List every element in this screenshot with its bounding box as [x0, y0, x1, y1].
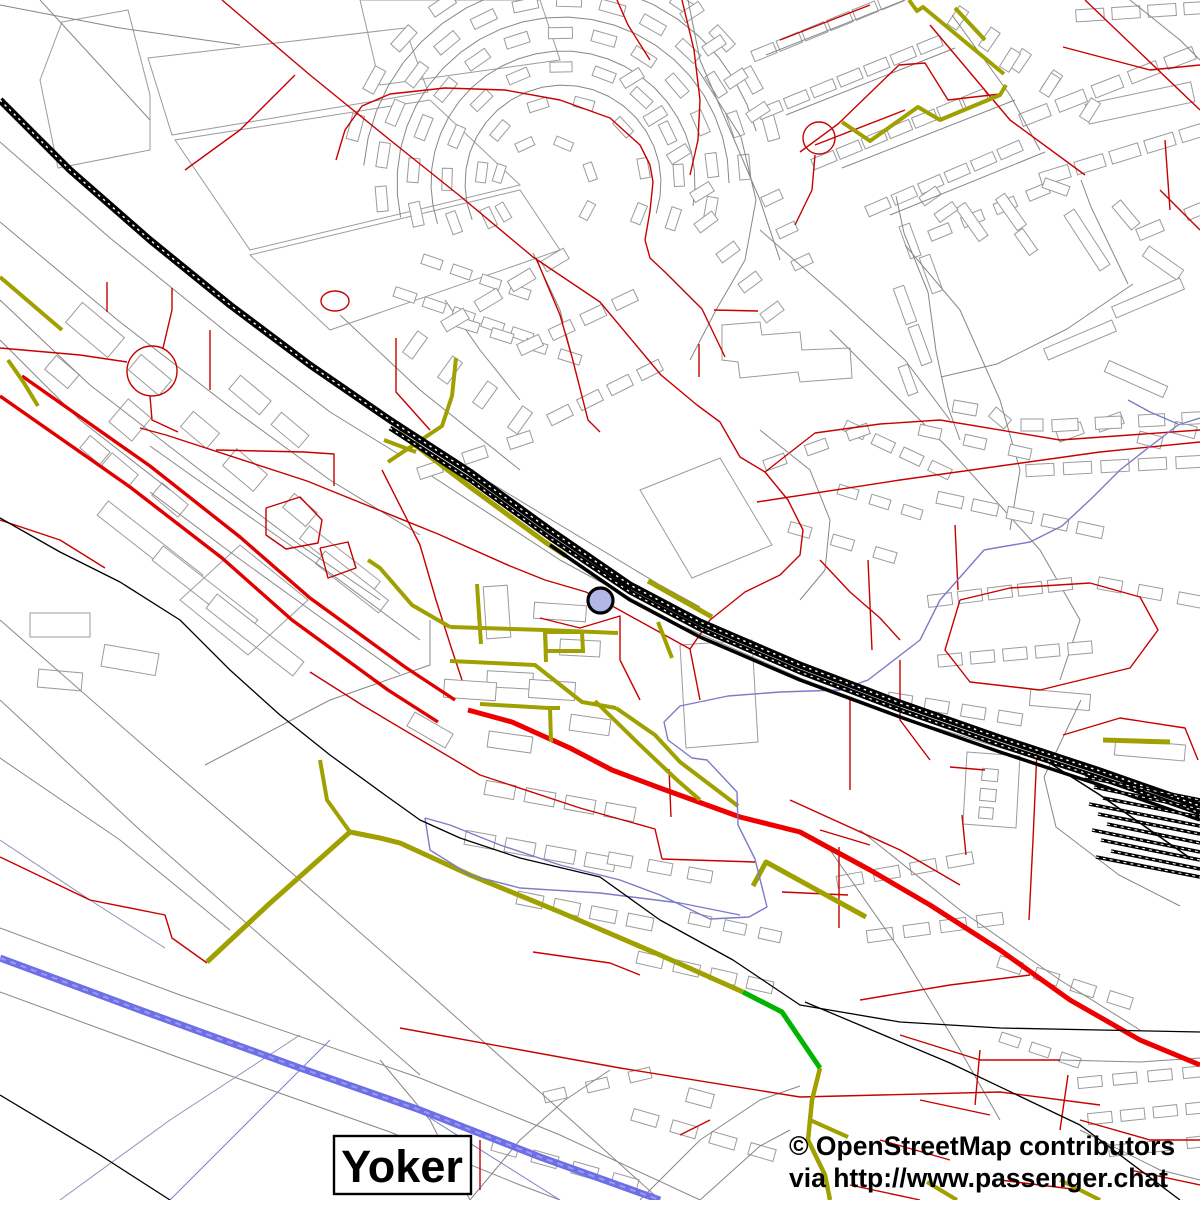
svg-text:via http://www.passenger.chat: via http://www.passenger.chat — [789, 1163, 1168, 1193]
svg-text:© OpenStreetMap contributors: © OpenStreetMap contributors — [789, 1131, 1175, 1161]
svg-text:Yoker: Yoker — [341, 1141, 463, 1192]
